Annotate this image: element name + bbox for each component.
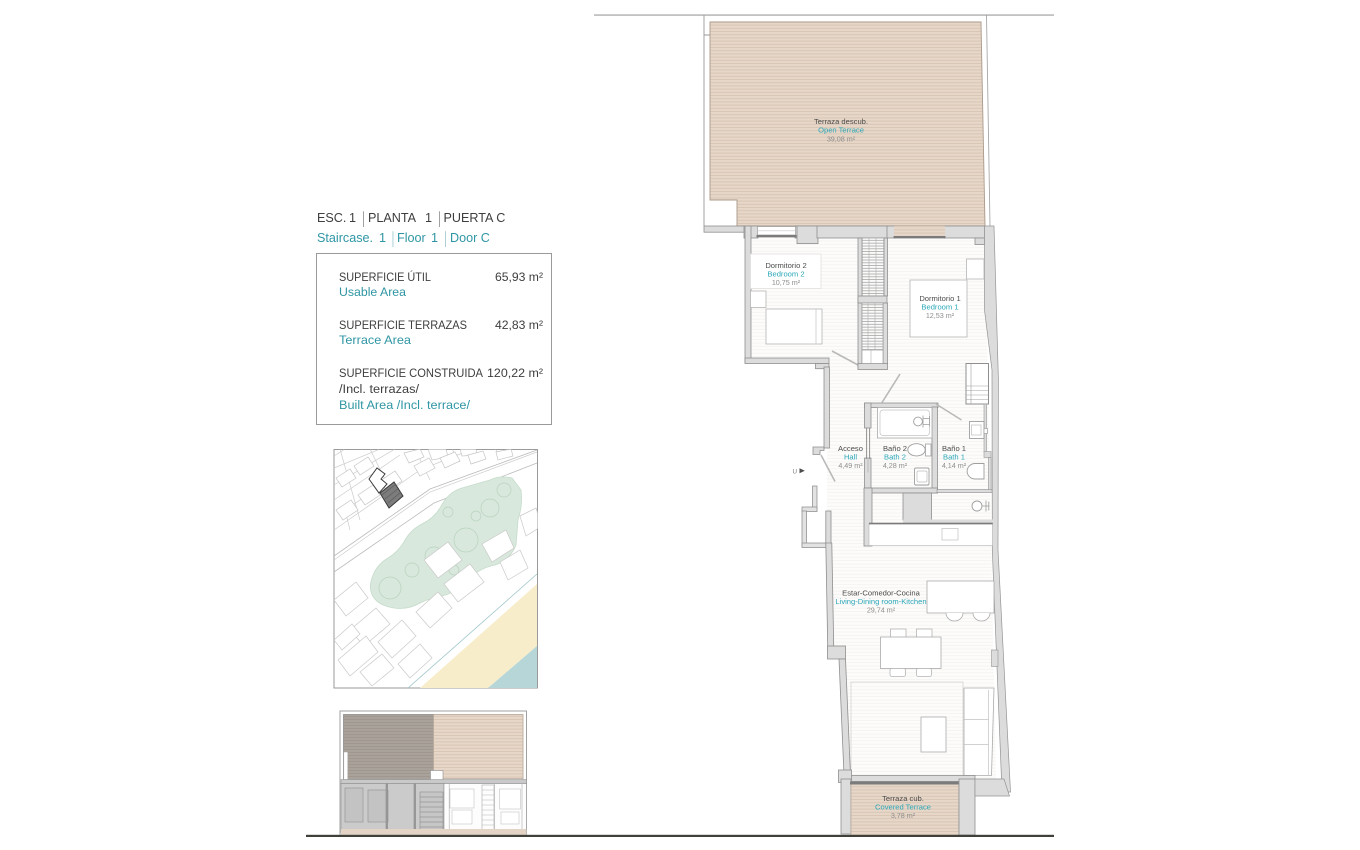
- svg-text:/Incl. terrazas/: /Incl. terrazas/: [339, 382, 420, 396]
- svg-text:65,93 m²: 65,93 m²: [495, 270, 543, 284]
- svg-text:│: │: [360, 211, 368, 227]
- svg-text:PUERTA C: PUERTA C: [444, 211, 506, 225]
- svg-text:Open Terrace: Open Terrace: [818, 126, 864, 135]
- svg-text:1: 1: [431, 231, 438, 245]
- svg-text:4,14 m²: 4,14 m²: [942, 461, 967, 470]
- svg-text:U: U: [793, 469, 797, 476]
- svg-text:│: │: [442, 231, 450, 247]
- svg-text:SUPERFICIE CONSTRUIDA: SUPERFICIE CONSTRUIDA: [339, 366, 484, 380]
- svg-text:Built Area /Incl. terrace/: Built Area /Incl. terrace/: [339, 398, 471, 412]
- svg-text:Usable Area: Usable Area: [339, 285, 406, 299]
- svg-text:Door C: Door C: [450, 231, 490, 245]
- svg-text:Terrace Area: Terrace Area: [339, 333, 411, 347]
- svg-text:1: 1: [349, 211, 356, 225]
- svg-text:Staircase.: Staircase.: [317, 231, 373, 245]
- svg-text:SUPERFICIE TERRAZAS: SUPERFICIE TERRAZAS: [339, 318, 467, 332]
- svg-text:42,83 m²: 42,83 m²: [495, 318, 543, 332]
- svg-text:120,22 m²: 120,22 m²: [487, 366, 543, 380]
- svg-text:Floor: Floor: [397, 231, 426, 245]
- svg-text:1: 1: [379, 231, 386, 245]
- svg-text:10,75 m²: 10,75 m²: [772, 278, 801, 287]
- svg-text:SUPERFICIE ÚTIL: SUPERFICIE ÚTIL: [339, 269, 431, 284]
- svg-text:4,28 m²: 4,28 m²: [883, 461, 908, 470]
- svg-text:12,53 m²: 12,53 m²: [926, 311, 955, 320]
- svg-text:1: 1: [425, 211, 432, 225]
- svg-text:39,08 m²: 39,08 m²: [827, 135, 856, 144]
- svg-text:3,78 m²: 3,78 m²: [891, 811, 916, 820]
- svg-text:4,49 m²: 4,49 m²: [838, 461, 863, 470]
- svg-text:PLANTA: PLANTA: [368, 211, 417, 225]
- svg-text:29,74 m²: 29,74 m²: [867, 606, 896, 615]
- svg-text:ESC.: ESC.: [317, 211, 346, 225]
